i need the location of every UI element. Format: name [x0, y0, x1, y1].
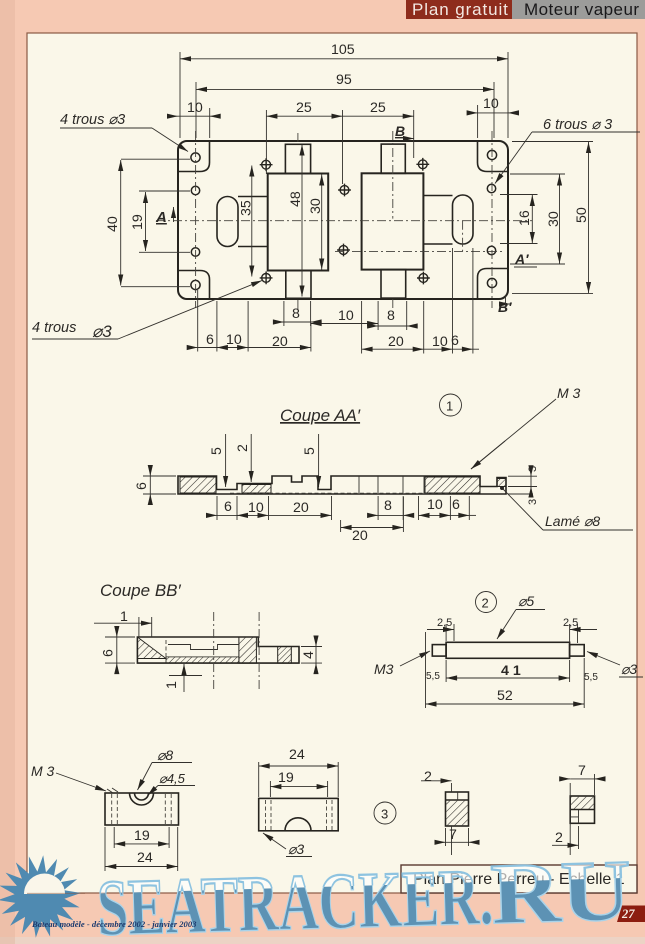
svg-text:6: 6: [224, 499, 232, 515]
svg-text:20: 20: [272, 334, 288, 350]
svg-text:A: A: [155, 209, 167, 226]
svg-text:10: 10: [432, 334, 448, 350]
svg-text:19: 19: [130, 214, 146, 230]
svg-text:B: B: [395, 123, 405, 139]
svg-text:105: 105: [331, 42, 355, 58]
svg-text:M 3: M 3: [557, 385, 581, 401]
svg-text:⌀3: ⌀3: [92, 322, 112, 341]
svg-text:5: 5: [302, 447, 318, 455]
svg-text:35: 35: [239, 200, 255, 216]
svg-text:10: 10: [248, 500, 264, 516]
svg-text:25: 25: [296, 100, 312, 116]
svg-text:20: 20: [293, 500, 309, 516]
svg-text:5,5: 5,5: [426, 671, 440, 682]
svg-text:10: 10: [427, 497, 443, 513]
svg-text:2: 2: [424, 769, 432, 785]
svg-text:M3: M3: [374, 661, 394, 677]
svg-text:Moteur vapeur: Moteur vapeur: [524, 0, 639, 19]
svg-text:4 trous ⌀3: 4 trous ⌀3: [60, 112, 125, 128]
svg-text:3: 3: [381, 807, 388, 822]
svg-text:7: 7: [578, 763, 586, 779]
svg-text:⌀8: ⌀8: [157, 747, 173, 763]
svg-text:52: 52: [497, 688, 513, 704]
svg-text:4 trous: 4 trous: [32, 320, 76, 336]
svg-text:7: 7: [449, 827, 457, 843]
svg-text:5,5: 5,5: [584, 672, 598, 683]
svg-text:1: 1: [164, 681, 180, 689]
svg-text:2,5: 2,5: [563, 617, 578, 629]
svg-text:19: 19: [278, 770, 294, 786]
svg-text:10: 10: [483, 96, 499, 112]
svg-text:Bateau modèle - décembre 2002: Bateau modèle - décembre 2002 - janvier …: [31, 919, 197, 929]
svg-text:6: 6: [101, 649, 117, 657]
svg-text:19: 19: [134, 828, 150, 844]
svg-text:⌀5: ⌀5: [518, 593, 534, 609]
svg-text:16: 16: [517, 210, 533, 226]
svg-text:8: 8: [292, 306, 300, 322]
svg-text:A′: A′: [514, 251, 529, 267]
svg-text:30: 30: [308, 198, 324, 214]
svg-text:Coupe AA′: Coupe AA′: [280, 406, 361, 425]
svg-text:1: 1: [446, 399, 453, 414]
svg-text:40: 40: [105, 216, 121, 232]
svg-text:4 1: 4 1: [501, 663, 521, 679]
svg-text:30: 30: [546, 211, 562, 227]
svg-text:8: 8: [384, 498, 392, 514]
svg-text:20: 20: [352, 528, 368, 544]
svg-text:5: 5: [209, 447, 225, 455]
svg-text:4: 4: [301, 651, 317, 659]
svg-text:20: 20: [388, 334, 404, 350]
svg-text:6: 6: [452, 497, 460, 513]
svg-text:6: 6: [206, 332, 214, 348]
svg-text:⌀3: ⌀3: [288, 841, 304, 857]
svg-text:6 trous ⌀ 3: 6 trous ⌀ 3: [543, 117, 612, 133]
svg-text:10: 10: [338, 308, 354, 324]
svg-text:10: 10: [226, 332, 242, 348]
svg-text:24: 24: [289, 747, 305, 763]
svg-text:3: 3: [527, 499, 539, 505]
svg-text:⌀4,5: ⌀4,5: [159, 771, 186, 786]
svg-text:Plan gratuit: Plan gratuit: [412, 0, 509, 19]
svg-text:Lamé ⌀8: Lamé ⌀8: [545, 513, 600, 529]
svg-text:48: 48: [288, 191, 304, 207]
svg-text:2: 2: [482, 596, 489, 611]
svg-text:1: 1: [120, 609, 128, 625]
svg-text:8: 8: [387, 308, 395, 324]
svg-text:50: 50: [574, 207, 590, 223]
svg-text:2,5: 2,5: [437, 617, 452, 629]
svg-text:6: 6: [134, 482, 150, 490]
svg-text:25: 25: [370, 100, 386, 116]
svg-text:⌀3: ⌀3: [621, 661, 637, 677]
svg-text:3: 3: [527, 466, 539, 472]
svg-text:10: 10: [187, 100, 203, 116]
svg-text:M 3: M 3: [31, 763, 55, 779]
svg-text:2: 2: [235, 444, 251, 452]
svg-text:6: 6: [451, 333, 459, 349]
svg-text:Coupe BB′: Coupe BB′: [100, 581, 181, 600]
svg-text:95: 95: [336, 72, 352, 88]
